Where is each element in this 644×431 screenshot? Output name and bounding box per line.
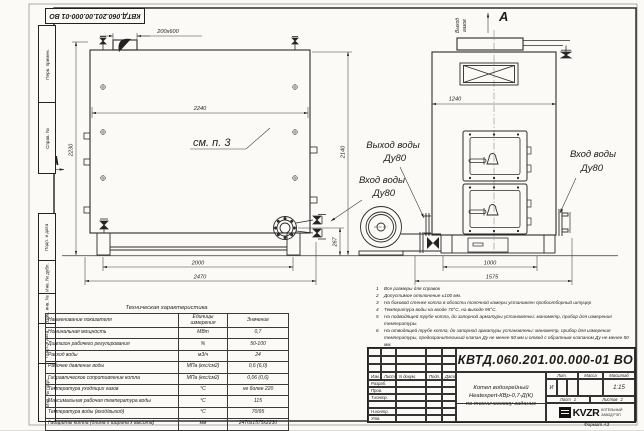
spec-row: Габариты котла (длина х ширина х высота)… bbox=[46, 419, 289, 430]
change-row-cell bbox=[396, 364, 426, 372]
note-item: 6На отводящей трубе котла, до запорной а… bbox=[376, 327, 636, 348]
tap-valve-icon bbox=[561, 52, 571, 58]
spec-row: Рабочее давление водыМПа (кгс/см2)0,6 (6… bbox=[46, 362, 289, 373]
dim-side-base: 2000 bbox=[191, 261, 205, 267]
spec-cell: °С bbox=[179, 407, 228, 418]
kvzr-logo-mark-icon bbox=[559, 407, 571, 418]
role-sign-cell bbox=[426, 380, 442, 387]
margin-box: Подп. и дата bbox=[38, 213, 56, 262]
note-item: 5На подводящей трубе котла, до запорной … bbox=[376, 313, 636, 327]
spec-row: Номинальная мощностьМВт0,7 bbox=[46, 328, 289, 339]
notes-block: 1Все размеры для справок2Допустимое откл… bbox=[376, 285, 636, 355]
spec-cell: °С bbox=[179, 396, 228, 407]
scale-label: Масштаб bbox=[603, 372, 635, 379]
mass-label: Масса bbox=[578, 372, 603, 379]
note-text: Допустимое отклонение ±100 мм. bbox=[384, 292, 461, 299]
role-name-cell bbox=[396, 415, 426, 422]
spec-row: Гидравлическое сопротивление котлаМПа (к… bbox=[46, 373, 289, 384]
spec-header-cell: Единицы измерения bbox=[179, 314, 228, 328]
spec-cell: МВт bbox=[179, 328, 228, 339]
change-row-cell bbox=[426, 364, 442, 372]
change-row-cell bbox=[368, 364, 381, 372]
drain-valve-icon bbox=[100, 219, 108, 233]
note-text: Все размеры для справок bbox=[384, 285, 440, 292]
door-lock-icon bbox=[487, 154, 498, 165]
role-sign-cell bbox=[426, 408, 442, 415]
note-text: На отводящей трубе котла, до запорной ар… bbox=[384, 327, 636, 348]
logo-cell: KVZR КОТЕЛЬНЫЙ ЗАВОД РЭП bbox=[546, 403, 635, 422]
spec-cell: 2470х1575х2230 bbox=[228, 419, 289, 430]
role-date-cell bbox=[442, 380, 456, 387]
furnace-door-lower bbox=[463, 184, 531, 234]
change-row-cell bbox=[442, 348, 456, 356]
change-row-cell bbox=[381, 364, 396, 372]
water-outlet-label: Выход воды bbox=[366, 140, 419, 151]
margin-box-label: Подп. и дата bbox=[45, 224, 50, 251]
spec-cell: 24 bbox=[228, 350, 289, 361]
note-number: 2 bbox=[376, 292, 384, 299]
drawing-designation: КВТД.060.201.00.000-01 ВО bbox=[456, 348, 635, 372]
drawing-sheet: 200x600 2240 2230 2140 267 2000 2470 124… bbox=[0, 0, 644, 430]
dim-flange-height: 267 bbox=[333, 236, 339, 247]
spec-cell: Расход воды bbox=[46, 350, 179, 361]
spec-row: Диапазон рабочего регулирования%50-100 bbox=[46, 339, 289, 350]
change-row-cell bbox=[368, 356, 381, 364]
change-row-cell bbox=[442, 364, 456, 372]
margin-box-label: Инв. № дубл. bbox=[45, 263, 50, 291]
note-number: 5 bbox=[376, 313, 384, 327]
role-label-cell bbox=[368, 401, 396, 408]
shutoff-valves-icon bbox=[296, 215, 326, 240]
spec-cell: Номинальная мощность bbox=[46, 328, 179, 339]
spec-cell: мм bbox=[179, 419, 228, 430]
spec-cell: % bbox=[179, 339, 228, 350]
change-header-cell: Дата bbox=[442, 372, 456, 380]
spec-header-cell: Значение bbox=[228, 314, 289, 328]
scale-value: 1:15 bbox=[603, 379, 635, 396]
see-note-label: см. п. 3 bbox=[193, 137, 231, 149]
spec-cell: МПа (кгс/см2) bbox=[179, 362, 228, 373]
vent-grille bbox=[460, 63, 518, 85]
lit-cell bbox=[557, 379, 567, 396]
spec-cell: Температура уходящих газов bbox=[46, 384, 179, 395]
role-date-cell bbox=[442, 408, 456, 415]
spec-cell: Температура воды (вход/выход) bbox=[46, 407, 179, 418]
note-text: На боковой стенке котла в области топочн… bbox=[384, 299, 591, 306]
water-inlet-right-label: Ду80 bbox=[580, 163, 604, 174]
role-date-cell bbox=[442, 401, 456, 408]
role-name-cell bbox=[396, 408, 426, 415]
format-label: Формат А3 bbox=[584, 422, 609, 427]
margin-box: Перв. примен. bbox=[38, 25, 56, 104]
lifting-lug-marks bbox=[100, 84, 298, 181]
spec-cell: не более 220 bbox=[228, 384, 289, 395]
spec-row: Температура воды (вход/выход)°С70/95 bbox=[46, 407, 289, 418]
role-label-cell: Н.контр. bbox=[368, 408, 396, 415]
change-header-cell: Лист bbox=[381, 372, 396, 380]
top-valve-icon bbox=[100, 37, 298, 50]
water-inlet-left-label: Ду80 bbox=[372, 188, 396, 199]
change-header-cell: N докум. bbox=[396, 372, 426, 380]
water-inlet-left-label: Вход воды bbox=[359, 175, 405, 186]
spec-table-title: Техническая характеристика bbox=[45, 305, 288, 311]
sheets-cell: Листов2 bbox=[590, 396, 635, 403]
lit-label: Лит. bbox=[546, 372, 578, 379]
spec-header-row: Наименование показателяЕдиницы измерения… bbox=[46, 314, 289, 328]
note-text: На подводящей трубе котла, до запорной а… bbox=[384, 313, 636, 327]
role-sign-cell bbox=[426, 401, 442, 408]
gas-outlet-label: газов bbox=[462, 19, 468, 32]
dim-duct: 200x600 bbox=[156, 29, 179, 35]
role-sign-cell bbox=[426, 387, 442, 394]
lit-value: И bbox=[546, 379, 557, 396]
company-cell bbox=[456, 403, 546, 422]
boiler-legs bbox=[97, 233, 300, 255]
change-row-cell bbox=[368, 348, 381, 356]
role-name-cell bbox=[396, 401, 426, 408]
top-stamp-designation: КВТД.060.201.00.000-01 ВО bbox=[49, 13, 140, 20]
kvzr-logo-text: KVZR bbox=[573, 407, 600, 419]
role-sign-cell bbox=[426, 394, 442, 401]
note-number: 3 bbox=[376, 299, 384, 306]
note-item: 2Допустимое отклонение ±100 мм. bbox=[376, 292, 636, 299]
change-row-cell bbox=[381, 348, 396, 356]
spec-cell: 115 bbox=[228, 396, 289, 407]
margin-box: Справ. № bbox=[38, 102, 56, 174]
note-item: 1Все размеры для справок bbox=[376, 285, 636, 292]
mass-value bbox=[578, 379, 603, 396]
role-sign-cell bbox=[426, 415, 442, 422]
duct-valve-icon bbox=[427, 237, 439, 249]
spec-cell: 0,7 bbox=[228, 328, 289, 339]
top-rotated-stamp: КВТД.060.201.00.000-01 ВО bbox=[45, 8, 145, 24]
role-name-cell bbox=[396, 380, 426, 387]
title-block: Изм.ЛистN докум.Подп.ДатаРазраб.Пров.Т.к… bbox=[367, 347, 636, 423]
role-label-cell: Пров. bbox=[368, 387, 396, 394]
water-inlet-fitting bbox=[559, 209, 570, 236]
role-label-cell: Утв. bbox=[368, 415, 396, 422]
note-text: Температура воды на входе 70°С, на выход… bbox=[384, 306, 497, 313]
spec-table: Наименование показателяЕдиницы измерения… bbox=[45, 313, 289, 431]
kvzr-logo-subtitle: КОТЕЛЬНЫЙ ЗАВОД РЭП bbox=[601, 408, 622, 416]
role-label-cell: Разраб. bbox=[368, 380, 396, 387]
note-item: 3На боковой стенке котла в области топоч… bbox=[376, 299, 636, 306]
margin-box: Инв. № дубл. bbox=[38, 260, 56, 295]
change-row-cell bbox=[396, 356, 426, 364]
change-row-cell bbox=[442, 356, 456, 364]
spec-cell: м3/ч bbox=[179, 350, 228, 361]
door-lock-icon bbox=[487, 205, 498, 216]
spec-row: Температура уходящих газов°Сне более 220 bbox=[46, 384, 289, 395]
dim-side-overall: 2470 bbox=[193, 275, 207, 281]
margin-box-label: Справ. № bbox=[45, 128, 50, 149]
furnace-door-upper bbox=[463, 131, 531, 181]
sheet-cell: Лист1 bbox=[546, 396, 590, 403]
gas-outlet-label: Выход bbox=[455, 18, 461, 33]
spec-row: Расход водым3/ч24 bbox=[46, 350, 289, 361]
dim-side-width: 2240 bbox=[193, 106, 207, 112]
dim-front-overall: 1575 bbox=[486, 275, 499, 281]
spec-row: Максимальная рабочая температура воды°С1… bbox=[46, 396, 289, 407]
spec-cell: 70/95 bbox=[228, 407, 289, 418]
view-label-top: А bbox=[498, 9, 508, 24]
role-name-cell bbox=[396, 394, 426, 401]
role-date-cell bbox=[442, 387, 456, 394]
role-date-cell bbox=[442, 415, 456, 422]
spec-cell: 0,6 (6,0) bbox=[228, 362, 289, 373]
lit-cell bbox=[567, 379, 578, 396]
water-inlet-right-label: Вход воды bbox=[570, 149, 616, 160]
change-header-cell: Подп. bbox=[426, 372, 442, 380]
change-row-cell bbox=[426, 348, 442, 356]
chimney-side-pipe bbox=[523, 41, 571, 59]
spec-header-cell: Наименование показателя bbox=[46, 314, 179, 328]
water-outlet-fitting bbox=[424, 213, 431, 236]
change-header-cell: Изм. bbox=[368, 372, 381, 380]
margin-box-label: Перв. примен. bbox=[45, 49, 50, 80]
base-frame bbox=[441, 235, 555, 253]
change-row-cell bbox=[396, 348, 426, 356]
spec-cell: 0,06 (0,6) bbox=[228, 373, 289, 384]
role-label-cell: Т.контр. bbox=[368, 394, 396, 401]
water-flange bbox=[274, 217, 297, 240]
role-name-cell bbox=[396, 387, 426, 394]
water-outlet-label: Ду80 bbox=[383, 153, 407, 164]
spec-cell: Рабочее давление воды bbox=[46, 362, 179, 373]
dim-front-width: 1240 bbox=[449, 97, 462, 103]
note-item: 4Температура воды на входе 70°С, на выхо… bbox=[376, 306, 636, 313]
note-number: 6 bbox=[376, 327, 384, 348]
spec-cell: 50-100 bbox=[228, 339, 289, 350]
note-number: 1 bbox=[376, 285, 384, 292]
dim-side-height: 2230 bbox=[69, 143, 75, 157]
note-number: 4 bbox=[376, 306, 384, 313]
role-date-cell bbox=[442, 394, 456, 401]
spec-cell: Габариты котла (длина х ширина х высота) bbox=[46, 419, 179, 430]
spec-cell: Максимальная рабочая температура воды bbox=[46, 396, 179, 407]
spec-cell: Диапазон рабочего регулирования bbox=[46, 339, 179, 350]
spec-cell: МПа (кгс/см2) bbox=[179, 373, 228, 384]
change-row-cell bbox=[381, 356, 396, 364]
dim-front-height: 2140 bbox=[341, 145, 347, 159]
spec-cell: °С bbox=[179, 384, 228, 395]
spec-cell: Гидравлическое сопротивление котла bbox=[46, 373, 179, 384]
change-row-cell bbox=[426, 356, 442, 364]
leader-lines bbox=[49, 13, 576, 221]
dim-front-base: 1000 bbox=[484, 261, 497, 267]
